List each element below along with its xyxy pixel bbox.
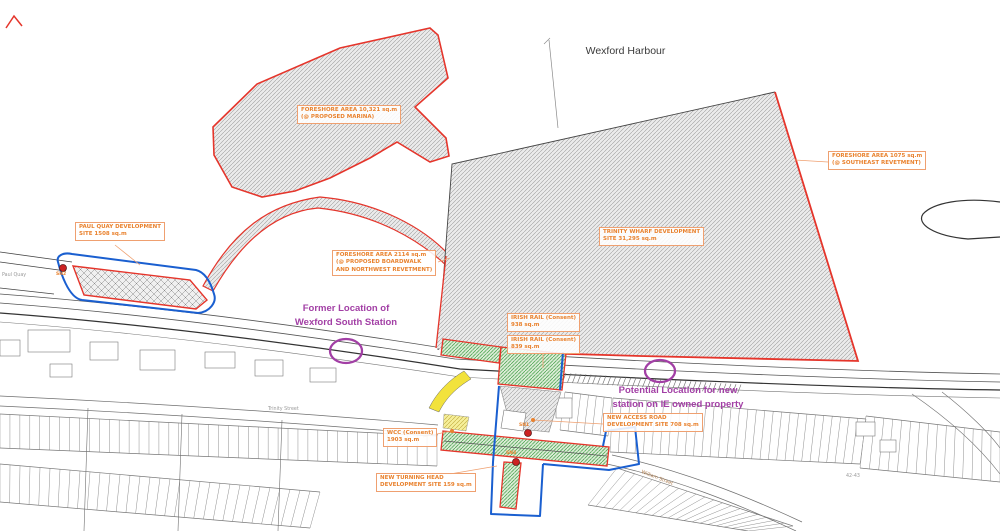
channel-marker-line bbox=[544, 38, 558, 128]
annotation-line: station on IE owned property bbox=[598, 398, 758, 412]
nw-revetment-label: FORESHORE AREA 2114 sq.m (@ PROPOSED BOA… bbox=[332, 250, 436, 276]
label-line: 839 sq.m bbox=[511, 344, 576, 351]
map-title: Wexford Harbour bbox=[568, 45, 683, 57]
map-canvas bbox=[0, 0, 1000, 531]
label-line: 938 sq.m bbox=[511, 322, 576, 329]
annotation-line: Former Location of bbox=[276, 302, 416, 316]
label-line: (@ PROPOSED MARINA) bbox=[301, 114, 397, 121]
annotation-line: Potential Location for new bbox=[598, 384, 758, 398]
building bbox=[880, 440, 896, 452]
sn1-label: SN1 bbox=[519, 423, 529, 428]
building bbox=[310, 368, 336, 382]
sn3-dot bbox=[513, 459, 520, 466]
sn1-dot bbox=[525, 430, 532, 437]
label-line: WCC (Consent) bbox=[387, 430, 433, 437]
trinity-street-line-south bbox=[0, 406, 438, 435]
paul-quay-site bbox=[73, 266, 207, 309]
label-line: FORESHORE AREA 2114 sq.m bbox=[336, 252, 432, 259]
label-line: DEVELOPMENT SITE 159 sq.m bbox=[380, 482, 472, 489]
new-turning-head-label: NEW TURNING HEAD DEVELOPMENT SITE 159 sq… bbox=[376, 473, 476, 492]
new-access-road-label: NEW ACCESS ROAD DEVELOPMENT SITE 708 sq.… bbox=[603, 413, 703, 432]
building bbox=[205, 352, 235, 368]
marina-foreshore-label: FORESHORE AREA 10,321 sq.m (@ PROPOSED M… bbox=[297, 105, 401, 124]
trinity-street-line-north bbox=[0, 396, 438, 425]
paul-quay-street-name: Paul Quay bbox=[2, 273, 26, 278]
paul-quay-label: PAUL QUAY DEVELOPMENT SITE 1508 sq.m bbox=[75, 222, 165, 241]
label-line: (@ PROPOSED BOARDWALK bbox=[336, 259, 432, 266]
label-line: TRINITY WHARF DEVELOPMENT bbox=[603, 229, 700, 236]
label-line: SITE 1508 sq.m bbox=[79, 231, 161, 238]
label-line: NEW ACCESS ROAD bbox=[607, 415, 699, 422]
label-line: IRISH RAIL (Consent) bbox=[511, 315, 576, 322]
building bbox=[28, 330, 70, 352]
site-plan-map: Wexford Harbour FORESHORE AREA 10,321 sq… bbox=[0, 0, 1000, 531]
access-road-point bbox=[531, 418, 535, 422]
building bbox=[255, 360, 283, 376]
building bbox=[50, 364, 72, 377]
sn3-label: SN3 bbox=[506, 451, 516, 456]
label-line: DEVELOPMENT SITE 708 sq.m bbox=[607, 422, 699, 429]
label-line: FORESHORE AREA 1075 sq.m bbox=[832, 153, 922, 160]
east-shoreline bbox=[922, 200, 1000, 239]
yellow-hatch-area bbox=[443, 414, 469, 431]
former-station-annotation: Former Location of Wexford South Station bbox=[276, 302, 416, 330]
label-line: 1903 sq.m bbox=[387, 437, 433, 444]
sn2-dot bbox=[60, 265, 67, 272]
label-line: (@ SOUTHEAST REVETMENT) bbox=[832, 160, 922, 167]
label-line: IRISH RAIL (Consent) bbox=[511, 337, 576, 344]
building bbox=[90, 342, 118, 360]
building bbox=[140, 350, 175, 370]
trinity-street-name: Trinity Street bbox=[268, 407, 299, 412]
boardwalk-foreshore-strip bbox=[203, 197, 449, 291]
yellow-curve-area bbox=[429, 371, 471, 412]
sn2-label: SN2 bbox=[56, 272, 66, 277]
wcc-label: WCC (Consent) 1903 sq.m bbox=[383, 428, 437, 447]
plot-42-43-label: 42-43 bbox=[846, 474, 860, 479]
label-line: SITE 31,295 sq.m bbox=[603, 236, 700, 243]
label-line: NEW TURNING HEAD bbox=[380, 475, 472, 482]
building-fabric bbox=[0, 392, 1000, 531]
wcc-point bbox=[450, 429, 454, 433]
irish-rail-south-label: IRISH RAIL (Consent) 839 sq.m bbox=[507, 335, 580, 354]
potential-station-annotation: Potential Location for new station on IE… bbox=[598, 384, 758, 412]
east-street-lines bbox=[912, 392, 1000, 474]
trinity-wharf-label: TRINITY WHARF DEVELOPMENT SITE 31,295 sq… bbox=[599, 227, 704, 246]
label-line: FORESHORE AREA 10,321 sq.m bbox=[301, 107, 397, 114]
leader-se-revetment bbox=[795, 160, 828, 162]
annotation-line: Wexford South Station bbox=[276, 316, 416, 330]
label-line: AND NORTHWEST REVETMENT) bbox=[336, 267, 432, 274]
building bbox=[0, 340, 20, 356]
label-line: PAUL QUAY DEVELOPMENT bbox=[79, 224, 161, 231]
william-street-line-north bbox=[612, 455, 802, 522]
corner-red-mark bbox=[6, 16, 22, 28]
building bbox=[856, 422, 875, 436]
irish-rail-north-label: IRISH RAIL (Consent) 938 sq.m bbox=[507, 313, 580, 332]
green-strip-turning-head bbox=[500, 462, 521, 509]
se-revetment-label: FORESHORE AREA 1075 sq.m (@ SOUTHEAST RE… bbox=[828, 151, 926, 170]
